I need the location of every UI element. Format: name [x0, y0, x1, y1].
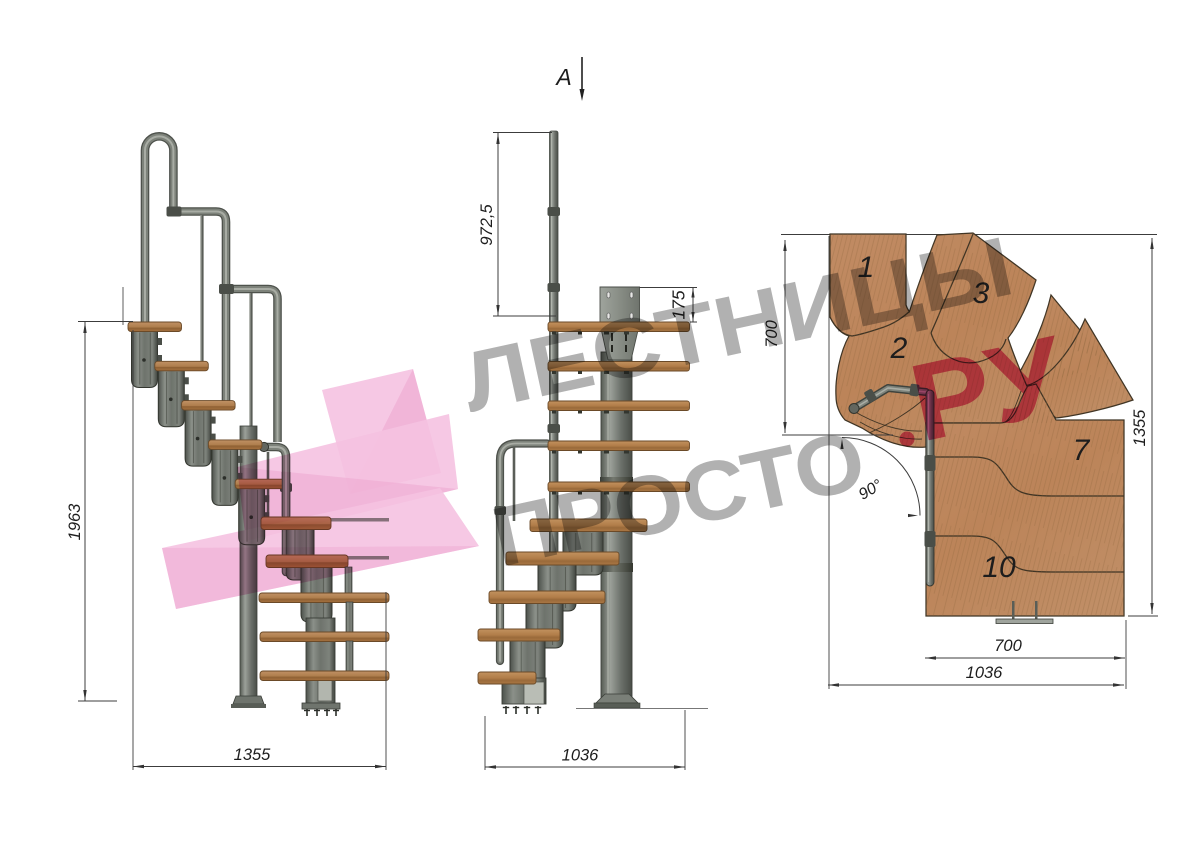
svg-text:10: 10 — [982, 551, 1016, 584]
svg-text:1355: 1355 — [1131, 409, 1149, 447]
svg-text:1036: 1036 — [966, 664, 1004, 682]
svg-text:972,5: 972,5 — [478, 204, 496, 246]
svg-text:700: 700 — [994, 637, 1022, 655]
svg-text:7: 7 — [1073, 434, 1091, 467]
svg-text:1963: 1963 — [66, 503, 84, 541]
svg-text:1036: 1036 — [562, 747, 600, 765]
svg-text:1355: 1355 — [234, 746, 272, 764]
svg-text:A: A — [554, 64, 571, 90]
